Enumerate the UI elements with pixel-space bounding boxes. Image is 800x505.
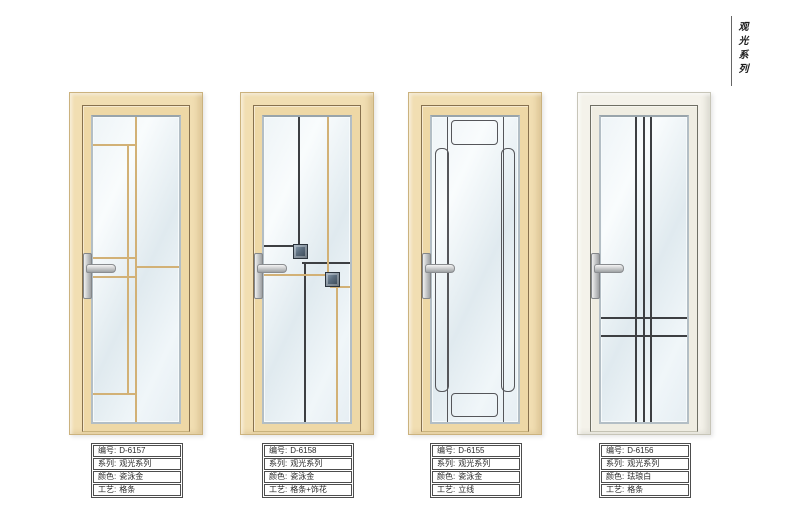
- catalog-page: { "page": { "series_label": "观光系列" }, "p…: [0, 0, 800, 505]
- spec-value: 格条: [627, 485, 643, 494]
- grid-line: [643, 117, 645, 422]
- flower-ornament: [325, 272, 340, 287]
- spec-value: 立线: [458, 485, 474, 494]
- spec-row-series: 系列:观光系列: [432, 458, 520, 470]
- spec-table-d6155: 编号:D-6155 系列:观光系列 颜色:瓷泳金 工艺:立线: [430, 443, 522, 498]
- grid-line: [93, 144, 135, 146]
- door-handle-lever: [257, 264, 287, 273]
- spec-value: 格条: [119, 485, 135, 494]
- grid-line: [93, 276, 135, 278]
- spec-row-code: 编号:D-6158: [264, 445, 352, 457]
- spec-value: 格条+饰花: [290, 485, 327, 494]
- spec-label: 系列:: [437, 459, 455, 468]
- grid-line: [127, 144, 129, 394]
- spec-value: 瓷泳金: [290, 472, 314, 481]
- spec-label: 编号:: [606, 446, 624, 455]
- spec-table-d6158: 编号:D-6158 系列:观光系列 颜色:瓷泳金 工艺:格条+饰花: [262, 443, 354, 498]
- spec-value: 观光系列: [290, 459, 322, 468]
- spec-value: 珐琅白: [627, 472, 651, 481]
- spec-value: D-6155: [458, 446, 484, 455]
- spec-label: 编号:: [98, 446, 116, 455]
- door-image-d6157: [69, 92, 203, 435]
- grid-line: [304, 262, 306, 422]
- spec-label: 颜色:: [606, 472, 624, 481]
- grid-line: [601, 317, 687, 319]
- grid-line: [650, 117, 652, 422]
- spec-row-color: 颜色:珐琅白: [601, 471, 689, 483]
- series-vertical-label: 观光系列: [735, 21, 749, 77]
- door-handle-plate: [422, 253, 431, 299]
- grid-line: [327, 117, 329, 276]
- spec-label: 颜色:: [98, 472, 116, 481]
- spec-label: 系列:: [606, 459, 624, 468]
- door-handle-lever: [425, 264, 455, 273]
- spec-row-craft: 工艺:格条: [601, 484, 689, 496]
- spec-value: D-6157: [119, 446, 145, 455]
- spec-value: 观光系列: [119, 459, 151, 468]
- grid-line: [135, 117, 137, 422]
- spec-row-craft: 工艺:格条: [93, 484, 181, 496]
- grid-line: [93, 257, 135, 259]
- spec-row-code: 编号:D-6156: [601, 445, 689, 457]
- door-handle-lever: [594, 264, 624, 273]
- door-handle-plate: [591, 253, 600, 299]
- spec-label: 编号:: [269, 446, 287, 455]
- spec-row-color: 颜色:瓷泳金: [264, 471, 352, 483]
- spec-table-d6157: 编号:D-6157 系列:观光系列 颜色:瓷泳金 工艺:格条: [91, 443, 183, 498]
- door-image-d6156: [577, 92, 711, 435]
- flower-ornament: [293, 244, 308, 259]
- grid-line: [635, 117, 637, 422]
- spec-label: 工艺:: [98, 485, 116, 494]
- spec-label: 工艺:: [606, 485, 624, 494]
- spec-label: 编号:: [437, 446, 455, 455]
- spec-row-series: 系列:观光系列: [601, 458, 689, 470]
- spec-value: 观光系列: [627, 459, 659, 468]
- spec-row-code: 编号:D-6155: [432, 445, 520, 457]
- spec-value: D-6158: [290, 446, 316, 455]
- spec-label: 工艺:: [437, 485, 455, 494]
- door-handle-lever: [86, 264, 116, 273]
- grid-line: [298, 117, 300, 248]
- spec-row-craft: 工艺:立线: [432, 484, 520, 496]
- panel-outline-bottom: [451, 393, 498, 418]
- spec-label: 系列:: [98, 459, 116, 468]
- spec-row-code: 编号:D-6157: [93, 445, 181, 457]
- spec-row-craft: 工艺:格条+饰花: [264, 484, 352, 496]
- door-image-d6155: [408, 92, 542, 435]
- grid-line: [93, 393, 135, 395]
- spec-label: 颜色:: [437, 472, 455, 481]
- panel-outline-top: [451, 120, 498, 145]
- spec-row-series: 系列:观光系列: [93, 458, 181, 470]
- spec-table-d6156: 编号:D-6156 系列:观光系列 颜色:珐琅白 工艺:格条: [599, 443, 691, 498]
- door-handle-plate: [254, 253, 263, 299]
- spec-label: 系列:: [269, 459, 287, 468]
- grid-line: [135, 266, 179, 268]
- grid-line: [601, 335, 687, 337]
- spec-value: 瓷泳金: [119, 472, 143, 481]
- spec-row-series: 系列:观光系列: [264, 458, 352, 470]
- door-image-d6158: [240, 92, 374, 435]
- door-handle-plate: [83, 253, 92, 299]
- spec-value: 瓷泳金: [458, 472, 482, 481]
- spec-row-color: 颜色:瓷泳金: [93, 471, 181, 483]
- spec-value: D-6156: [627, 446, 653, 455]
- spec-value: 观光系列: [458, 459, 490, 468]
- series-divider-rule: [731, 16, 732, 86]
- grid-line: [336, 286, 338, 422]
- spec-label: 颜色:: [269, 472, 287, 481]
- grid-line: [264, 274, 330, 276]
- spec-row-color: 颜色:瓷泳金: [432, 471, 520, 483]
- spec-label: 工艺:: [269, 485, 287, 494]
- panel-outline-right: [501, 148, 515, 392]
